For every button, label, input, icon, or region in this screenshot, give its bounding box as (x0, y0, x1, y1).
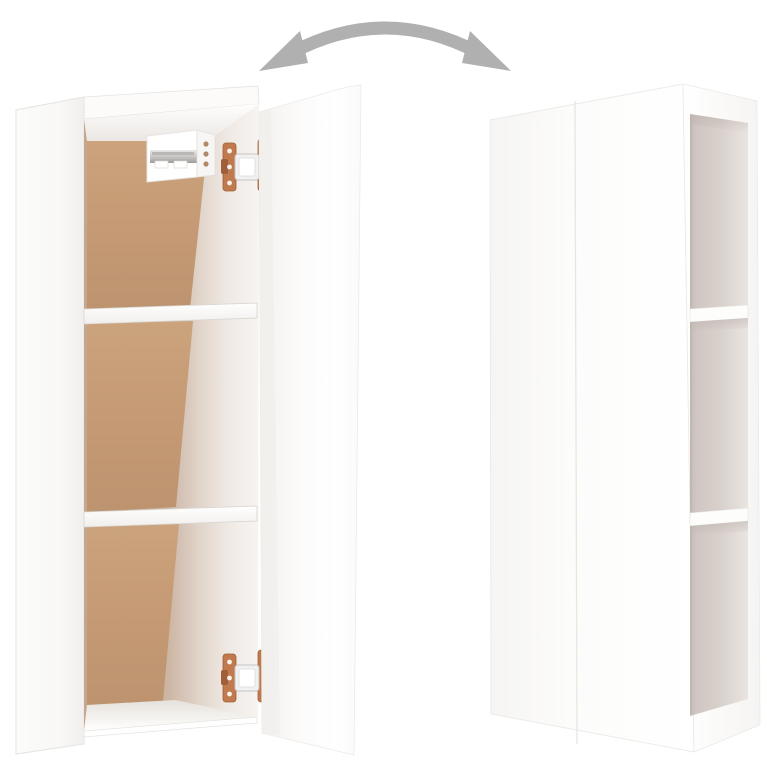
cabinet-interior (84, 104, 259, 737)
product-image: Two white wall-mounted cabinets: left un… (0, 0, 767, 767)
side-compartment-top (690, 114, 748, 309)
wood-back-panel-middle (87, 321, 193, 512)
side-compartment-bottom (690, 521, 748, 716)
rotation-arrow-icon (259, 28, 511, 71)
wall-mount-bracket (147, 130, 215, 182)
right-cabinet-closed (490, 84, 760, 752)
side-compartment-middle (690, 318, 748, 513)
cabinet-door-open (259, 85, 361, 755)
cabinet-side-panel (16, 97, 84, 754)
front-face (490, 84, 694, 752)
arrow-head-left (259, 31, 308, 71)
arrow-head-right (462, 31, 511, 71)
left-cabinet-open (16, 85, 361, 755)
